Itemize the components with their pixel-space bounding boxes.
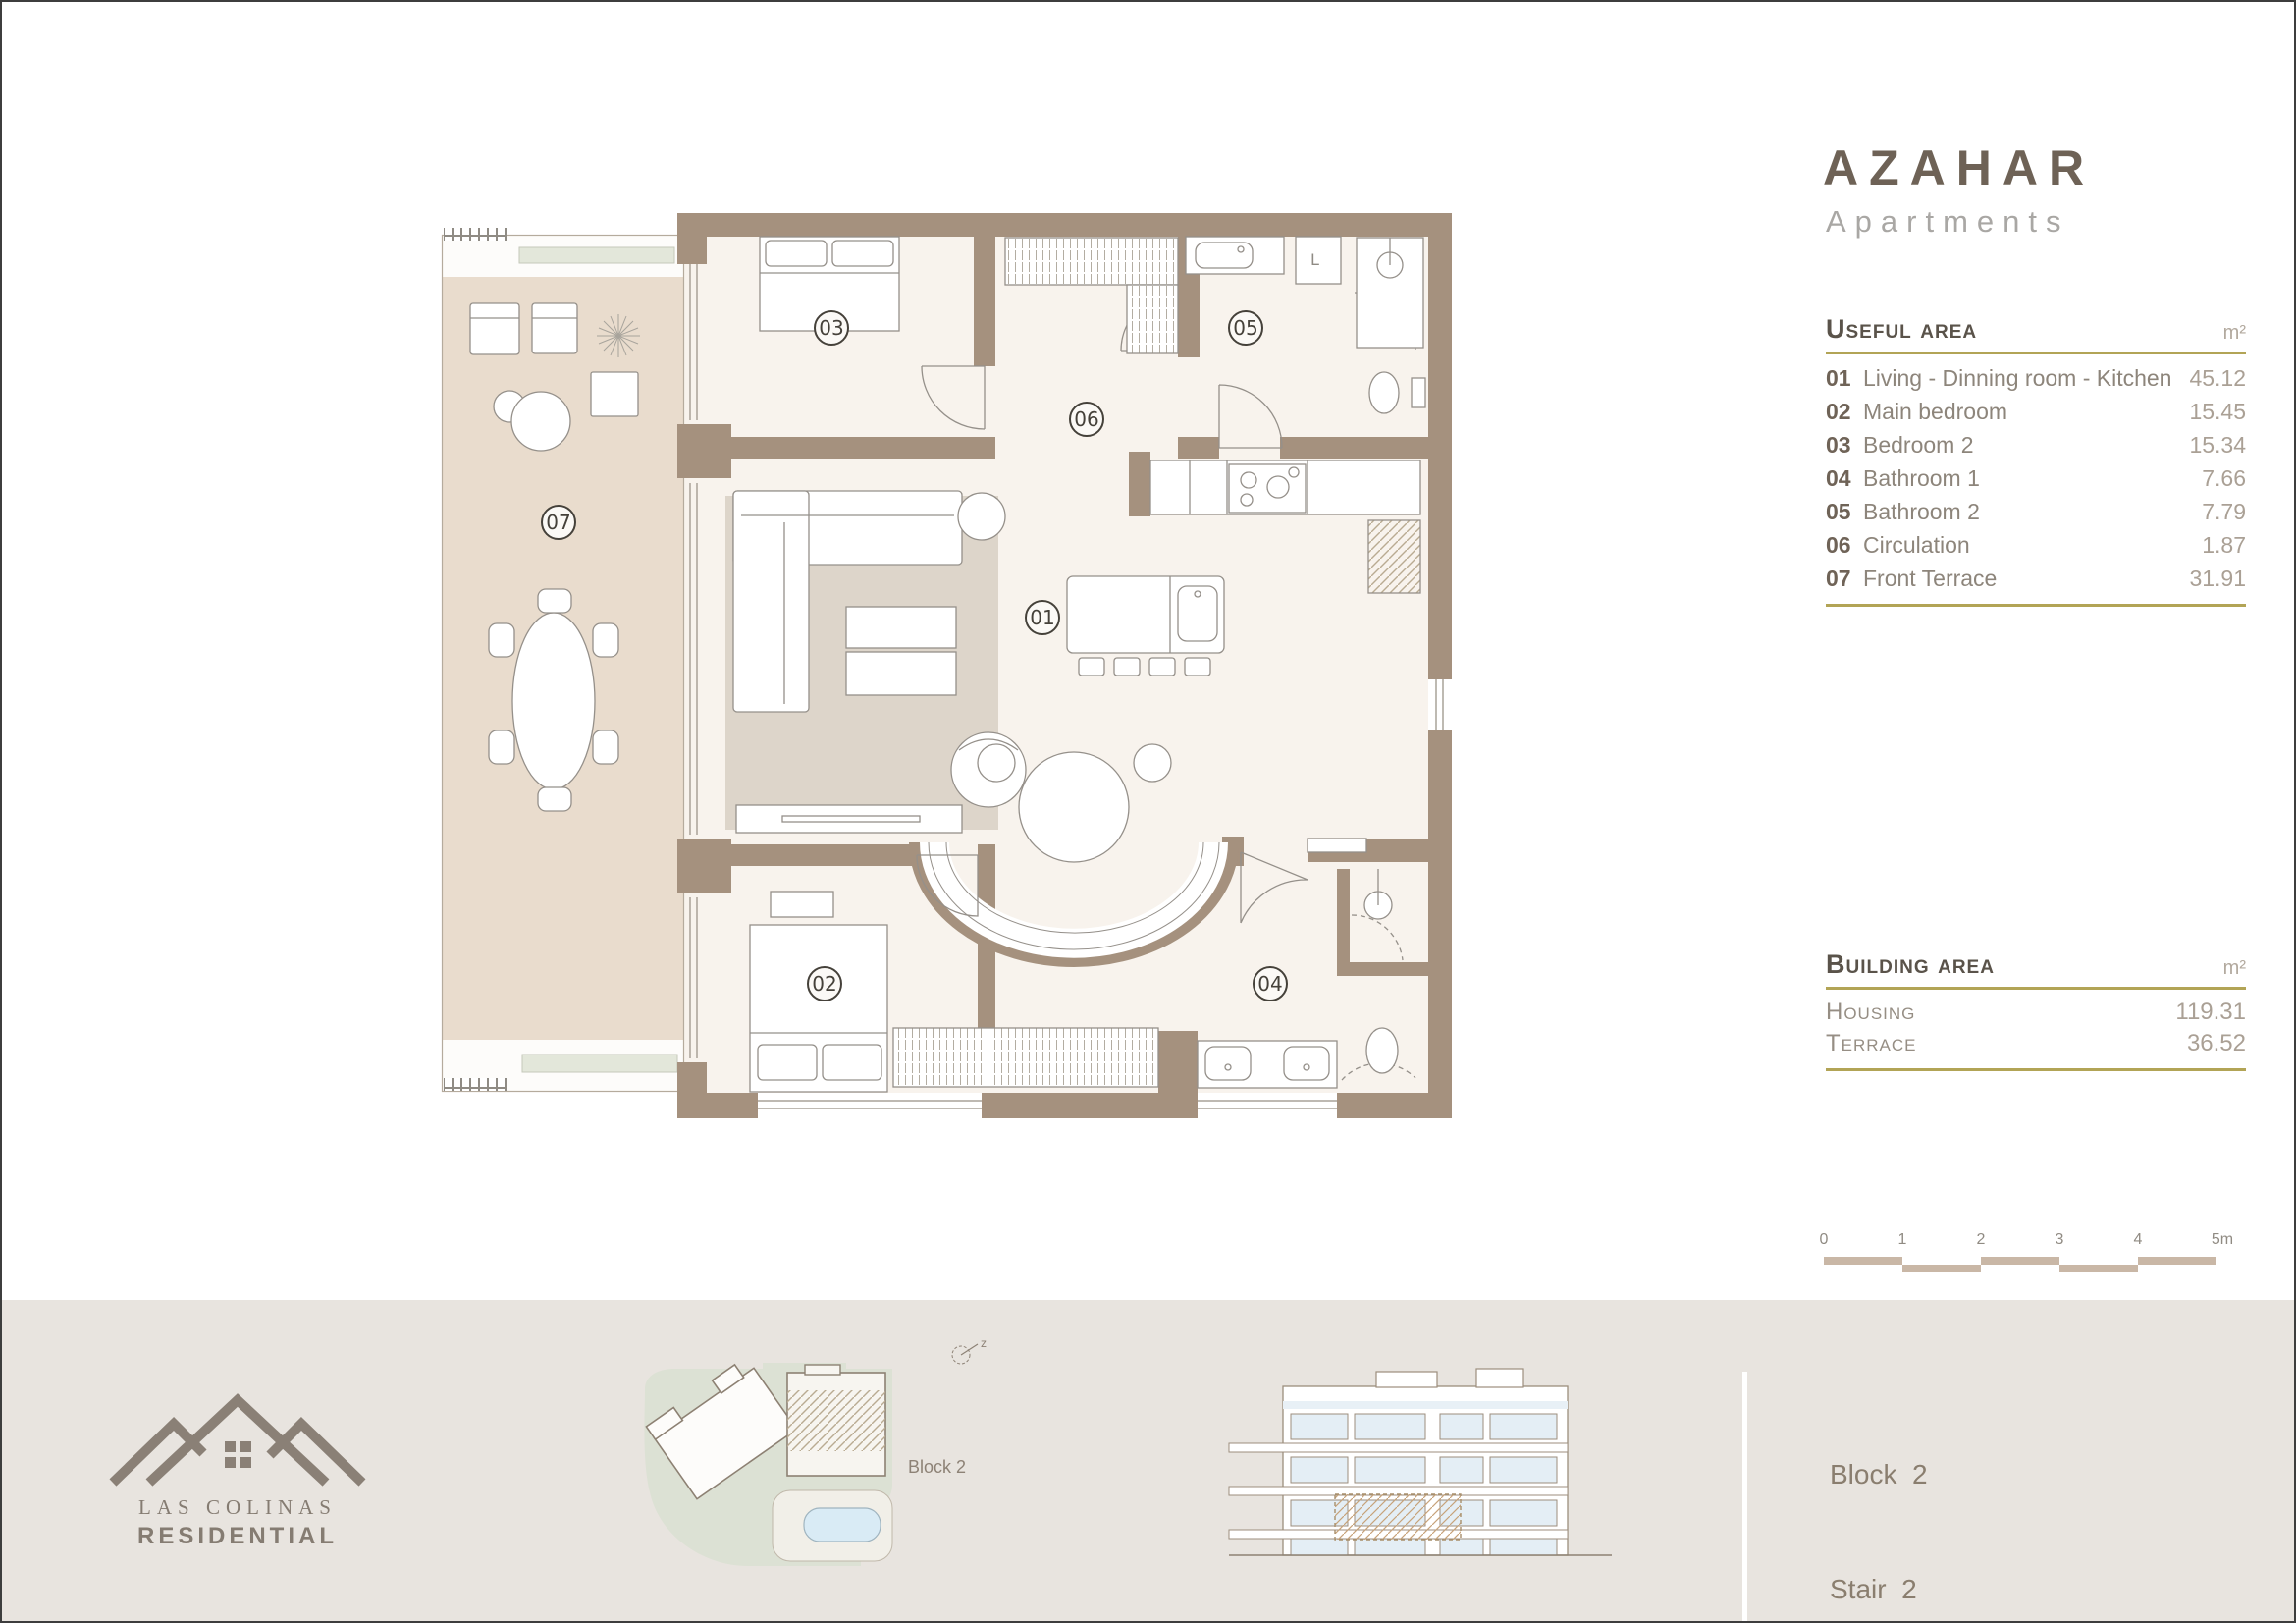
logo-line1: LAS COLINAS — [138, 1495, 337, 1519]
window-right — [1428, 679, 1452, 730]
wardrobe-dressing — [1005, 238, 1178, 285]
row-label: Terrace — [1826, 1030, 2187, 1057]
scale-tick: 4 — [2134, 1231, 2143, 1249]
north-arrow-icon: z — [952, 1336, 987, 1364]
room-label-05: 05 — [1233, 316, 1257, 340]
table-row: 04 Bathroom 1 7.66 — [1826, 461, 2246, 495]
row-num: 06 — [1826, 532, 1863, 559]
room-label-04: 04 — [1257, 972, 1282, 996]
brochure-page: L — [0, 0, 2296, 1623]
shelf — [1308, 839, 1366, 852]
table-row: 07 Front Terrace 31.91 — [1826, 562, 2246, 595]
row-value: 31.91 — [2189, 566, 2246, 592]
dining-chair — [1134, 744, 1171, 782]
terrace-dining-table — [512, 613, 595, 789]
planter-bottom — [522, 1055, 677, 1072]
floor-plan: L — [442, 213, 1452, 1118]
wardrobe-main — [893, 1028, 1158, 1087]
row-value: 45.12 — [2189, 365, 2246, 392]
row-value: 15.34 — [2189, 432, 2246, 459]
pool — [804, 1508, 881, 1542]
row-num: 04 — [1826, 465, 1863, 492]
bar-stool — [1149, 658, 1175, 676]
row-label: Bedroom 2 — [1863, 432, 2189, 459]
round-table-large — [511, 392, 570, 451]
terrace-chair — [538, 787, 571, 811]
site-building-2-highlight — [787, 1390, 885, 1451]
terrace-chair — [489, 623, 514, 657]
building-elevation — [1229, 1369, 1612, 1555]
row-label: Circulation — [1863, 532, 2202, 559]
roof-box — [1476, 1369, 1523, 1387]
site-plan: Block 2 z — [644, 1336, 987, 1566]
sink-basin — [1284, 1047, 1329, 1080]
pillow — [766, 241, 827, 266]
room-label-03: 03 — [819, 316, 843, 340]
coffee-table-2 — [846, 652, 956, 695]
dresser — [771, 892, 833, 917]
washer-label: L — [1310, 250, 1319, 269]
roof-box — [1376, 1372, 1437, 1387]
vent-grille-top — [444, 228, 507, 241]
logo-window-icon — [225, 1441, 251, 1468]
sink-basin — [1205, 1047, 1251, 1080]
building-area-heading: Building area — [1826, 949, 1995, 980]
toilet-bath1 — [1366, 1028, 1398, 1073]
table-row: 05 Bathroom 2 7.79 — [1826, 495, 2246, 528]
row-label: Living - Dinning room - Kitchen — [1863, 365, 2189, 392]
row-label: Main bedroom — [1863, 399, 2189, 425]
scale-tick: 1 — [1898, 1231, 1907, 1249]
row-num: 02 — [1826, 399, 1863, 425]
row-num: 03 — [1826, 432, 1863, 459]
row-value: 7.66 — [2202, 465, 2246, 492]
tv — [782, 816, 920, 822]
window-bedroom2 — [758, 1093, 982, 1118]
logo-line2: RESIDENTIAL — [137, 1523, 338, 1549]
row-value: 36.52 — [2187, 1030, 2246, 1057]
parapet-band — [1283, 1401, 1568, 1409]
page-subtitle: Apartments — [1826, 204, 2070, 240]
scale-segment — [1824, 1257, 1902, 1265]
scale-tick: 5m — [2212, 1231, 2233, 1249]
table-row: 02 Main bedroom 15.45 — [1826, 395, 2246, 428]
room-label-06: 06 — [1074, 407, 1098, 431]
row-value: 15.45 — [2189, 399, 2246, 425]
faucet-icon — [1195, 591, 1201, 597]
row-value: 7.79 — [2202, 499, 2246, 525]
terrace-chair — [538, 589, 571, 613]
planter-top — [519, 247, 674, 263]
row-label: Housing — [1826, 999, 2175, 1026]
vent-grille-bottom — [444, 1078, 507, 1091]
scale-segment — [2059, 1265, 2138, 1272]
terrace-chair — [593, 730, 618, 764]
row-num: 07 — [1826, 566, 1863, 592]
useful-area-heading: Useful area — [1826, 314, 1977, 345]
detail-stair: Stair 2 — [1830, 1570, 1987, 1608]
faucet-icon — [1225, 1064, 1231, 1070]
dining-table — [1019, 752, 1129, 862]
north-label: z — [981, 1336, 987, 1350]
pillow — [832, 241, 893, 266]
table-row: Terrace 36.52 — [1826, 1028, 2246, 1059]
toilet-bath2 — [1369, 372, 1399, 413]
row-value: 1.87 — [2202, 532, 2246, 559]
useful-area-unit: m² — [2223, 322, 2246, 345]
scale-tick: 3 — [2056, 1231, 2064, 1249]
room-label-02: 02 — [812, 972, 836, 996]
scale-segment — [1902, 1265, 1981, 1272]
room-label-07: 07 — [546, 511, 570, 534]
tall-cabinet — [1368, 520, 1420, 593]
terrace-chair — [489, 730, 514, 764]
sink-basin — [1196, 243, 1253, 268]
toilet-tank — [1412, 378, 1425, 407]
bar-stool — [1079, 658, 1104, 676]
table-row: Housing 119.31 — [1826, 997, 2246, 1028]
lounge-chair-2 — [532, 303, 577, 353]
row-num: 05 — [1826, 499, 1863, 525]
bar-stool — [1114, 658, 1140, 676]
row-label: Bathroom 1 — [1863, 465, 2202, 492]
side-table-terrace — [591, 372, 638, 416]
bar-stool — [1185, 658, 1210, 676]
scale-segment — [2138, 1257, 2216, 1265]
roofline-icon — [113, 1400, 362, 1483]
dining-chair — [978, 744, 1015, 782]
window-bathroom1 — [1198, 1093, 1337, 1118]
sofa-left — [733, 491, 809, 712]
lounge-chair-1 — [470, 303, 519, 354]
apartment-highlight — [1335, 1494, 1461, 1540]
site-block-label: Block 2 — [908, 1457, 966, 1477]
room-label-01: 01 — [1030, 606, 1054, 629]
detail-block: Block 2 — [1830, 1455, 1987, 1493]
coffee-table-1 — [846, 607, 956, 648]
terrace-chair — [593, 623, 618, 657]
row-value: 119.31 — [2175, 999, 2246, 1026]
building-area-unit: m² — [2223, 957, 2246, 980]
row-label: Bathroom 2 — [1863, 499, 2202, 525]
apartment-details: Block 2 Stair 2 First floor Apartment 5 — [1830, 1379, 1987, 1623]
table-row: 03 Bedroom 2 15.34 — [1826, 428, 2246, 461]
scale-tick: 0 — [1820, 1231, 1829, 1249]
site-building-2 — [787, 1365, 885, 1476]
faucet-icon — [1304, 1064, 1309, 1070]
scale-segment — [1981, 1257, 2059, 1265]
scale-tick: 2 — [1977, 1231, 1986, 1249]
useful-area-table: Useful area m² 01 Living - Dinning room … — [1826, 314, 2246, 607]
scale-bar: 0 1 2 3 4 5m — [1806, 1231, 2248, 1282]
side-table-round — [958, 493, 1005, 540]
pillow — [823, 1045, 881, 1080]
table-row: 06 Circulation 1.87 — [1826, 528, 2246, 562]
table-row: 01 Living - Dinning room - Kitchen 45.12 — [1826, 361, 2246, 395]
brand-logo: LAS COLINAS RESIDENTIAL — [113, 1400, 362, 1549]
row-num: 01 — [1826, 365, 1863, 392]
pillow — [758, 1045, 817, 1080]
page-title: AZAHAR — [1823, 139, 2095, 196]
faucet-icon — [1238, 246, 1244, 252]
wardrobe-dressing-2 — [1127, 285, 1178, 353]
building-area-table: Building area m² Housing 119.31 Terrace … — [1826, 949, 2246, 1071]
row-label: Front Terrace — [1863, 566, 2189, 592]
